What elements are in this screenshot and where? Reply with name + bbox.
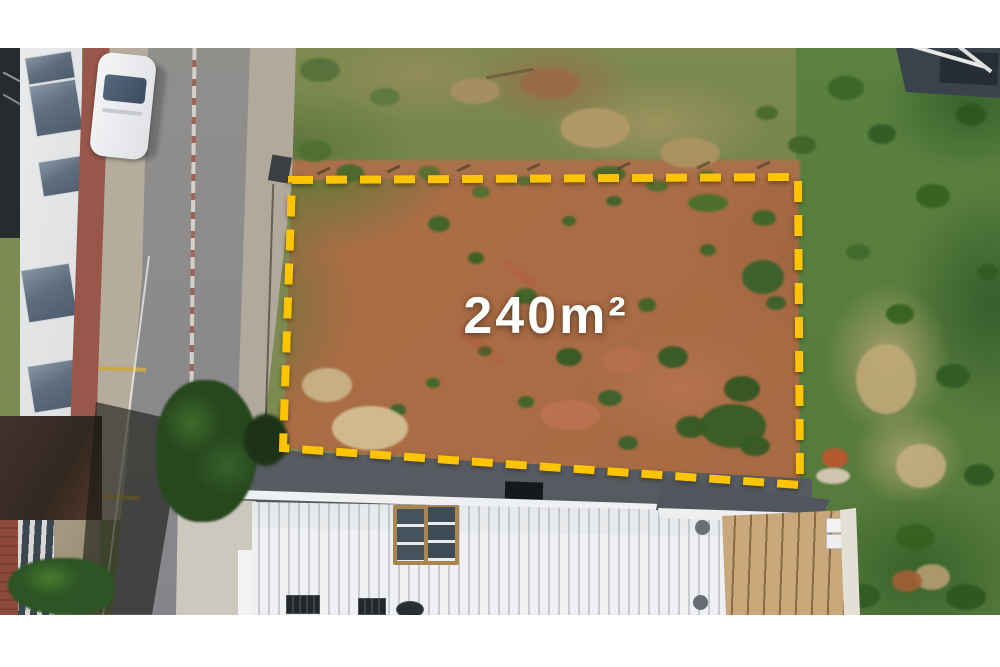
area-label: 240m² (436, 286, 656, 346)
aerial-photo: 240m² (0, 48, 1000, 615)
letterbox-top (0, 0, 1000, 48)
screenshot: 240m² (0, 0, 1000, 667)
letterbox-bottom (0, 615, 1000, 667)
